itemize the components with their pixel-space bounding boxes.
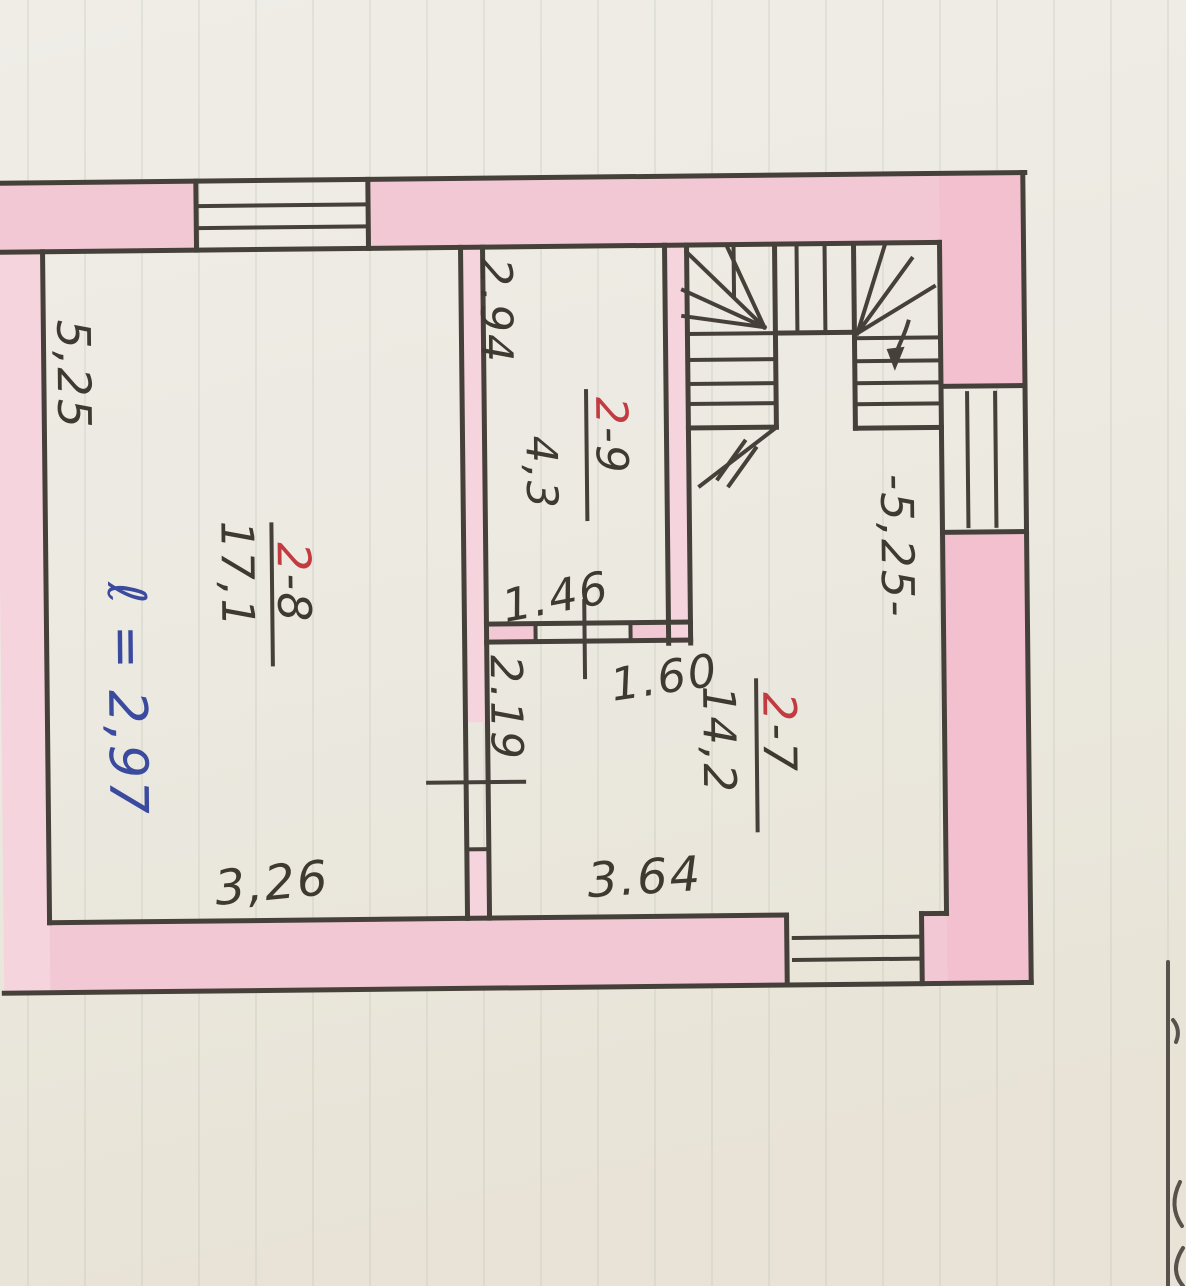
window-jamb-line <box>941 385 1025 386</box>
room-number-red-part: 2 <box>267 542 321 574</box>
stair-flight-edge <box>855 427 941 428</box>
dim-right-wall: -5,25- <box>870 474 925 619</box>
bottom-wall-fill <box>50 915 788 993</box>
bottom-wall-right-segment-fill <box>922 913 948 983</box>
stair-winder-tread <box>797 245 798 333</box>
window-pane-line <box>794 959 919 960</box>
top-right-corner-wall-fill <box>939 171 1027 386</box>
dim-room29-depth: 2.94 <box>470 258 522 364</box>
dim-room28-width: 3,26 <box>212 850 332 917</box>
blue-height-note: ℓ = 2,97 <box>95 581 158 817</box>
room-area: 14,2 <box>692 685 746 794</box>
interior-wall-a-lower-fill <box>467 847 490 918</box>
top-wall-right-fill <box>368 172 940 248</box>
window-jamb-line <box>787 915 788 985</box>
dim-door-219: 2.19 <box>480 655 532 761</box>
floor-plan-drawing: 5,25 -5,25- 2.94 1.46 1.60 2.19 3,26 3.6… <box>0 0 1186 1286</box>
room-area: 4,3 <box>515 435 566 510</box>
window-pane-line <box>967 393 968 526</box>
room-number-black-part: -9 <box>585 427 636 475</box>
room-number: 2-7 <box>752 692 807 774</box>
stair-winder-tread <box>825 245 826 333</box>
dim-left-wall: 5,25 <box>46 319 101 430</box>
stair-winder-tread <box>734 246 735 296</box>
window-pane-line <box>199 226 365 228</box>
photographed-floor-plan-page: 5,25 -5,25- 2.94 1.46 1.60 2.19 3,26 3.6… <box>0 0 1186 1286</box>
window-jamb-line <box>943 531 1027 532</box>
right-wall-lower-fill <box>943 532 1034 983</box>
room-number-red-part: 2 <box>752 692 806 724</box>
wall-line <box>487 640 691 642</box>
stair-well-line <box>775 245 777 427</box>
stair-landing-edge <box>775 332 854 333</box>
room-area: 17,1 <box>210 520 264 629</box>
door-219-marker <box>428 782 524 783</box>
room-number: 2-8 <box>267 542 322 624</box>
stair-flight-edge <box>688 427 776 428</box>
window-pane-line <box>995 393 996 526</box>
top-wall-left-fill <box>0 180 197 252</box>
window-pane-line <box>794 937 919 938</box>
room-number: 2-9 <box>585 397 637 475</box>
room-number-red-part: 2 <box>585 397 636 428</box>
window-jamb-line <box>196 181 197 250</box>
window-jamb-line <box>922 914 923 984</box>
room-number-black-part: -8 <box>267 573 322 623</box>
dim-hall-width: 3.64 <box>586 846 704 909</box>
room-number-black-part: -7 <box>753 723 808 773</box>
window-pane-line <box>199 204 365 206</box>
window-jamb-line <box>368 179 369 248</box>
